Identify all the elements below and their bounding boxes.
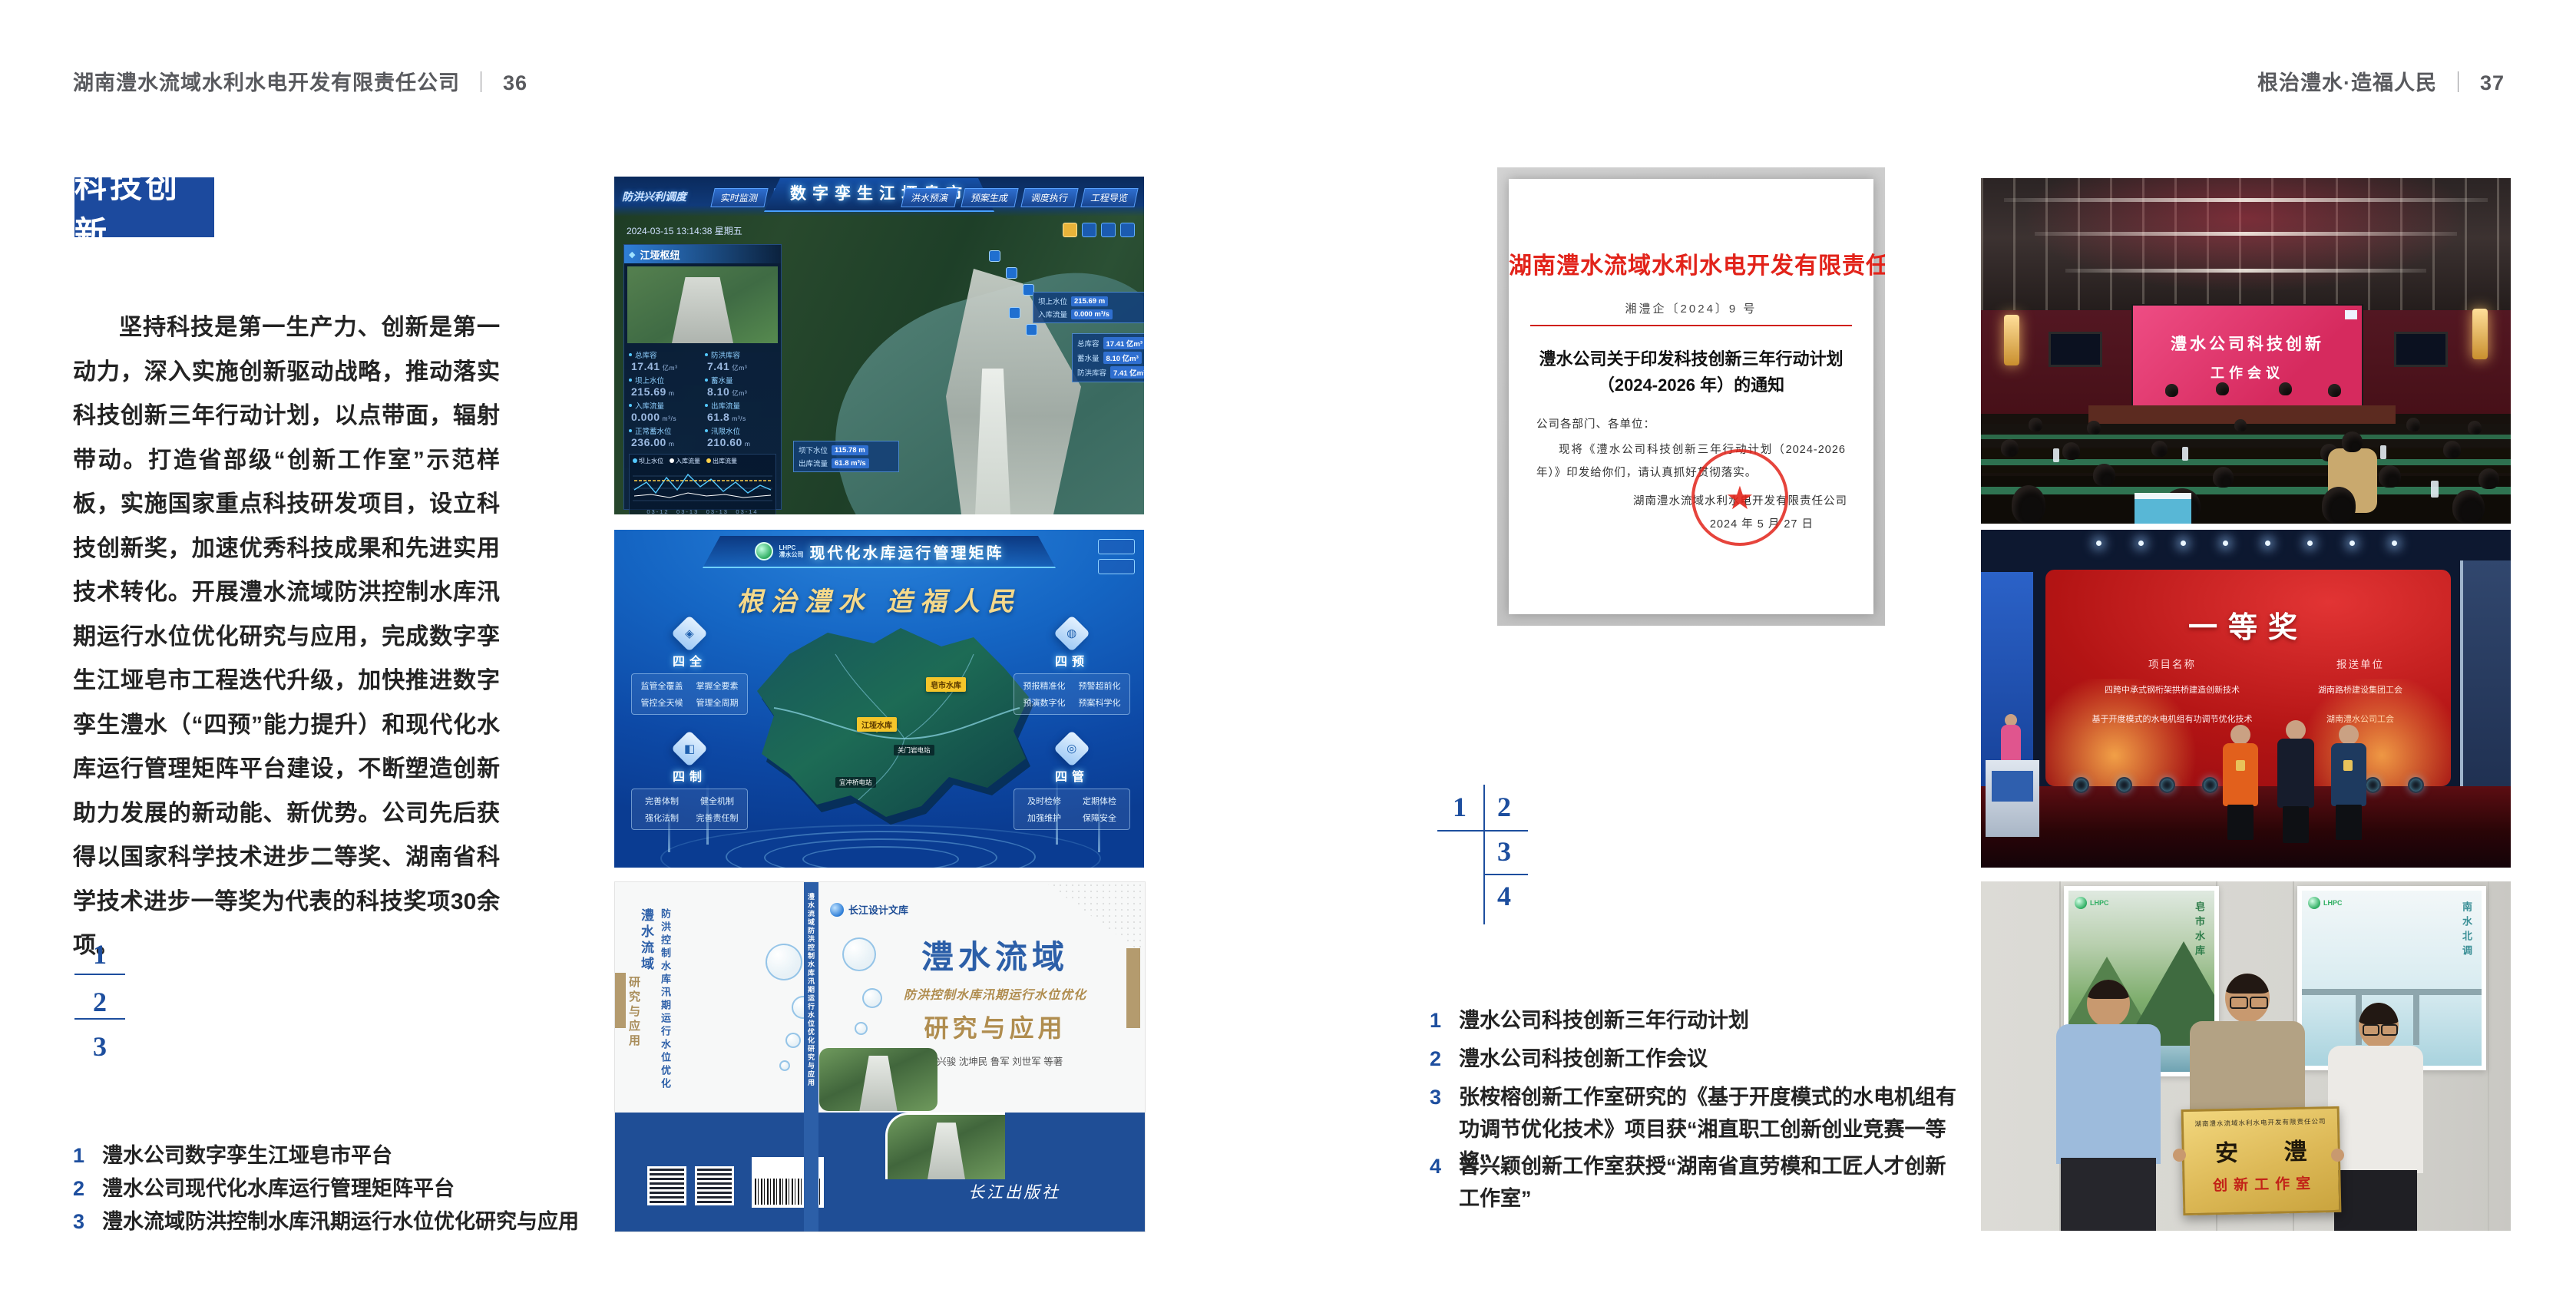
header-divider: ｜ (2448, 71, 2469, 94)
caption-item: 1 澧水公司科技创新三年行动计划 (1430, 1004, 1952, 1037)
qr-code (647, 1166, 686, 1205)
red-rule (1530, 325, 1852, 326)
stamp-star-icon: ★ (1725, 479, 1754, 517)
caption-item: 2 澧水公司现代化水库运行管理矩阵平台 (73, 1172, 455, 1205)
book-title-main: 澧水流域 (868, 931, 1122, 978)
award-row-project: 基于开度模式的水电机组有功调节优化技术 (2076, 713, 2268, 725)
series-name: 长江设计文库 (848, 902, 908, 917)
attendee-silhouette (2452, 490, 2485, 524)
stat-storage: 蓄水量8.10亿m³ (705, 375, 776, 398)
wall-seam (2488, 881, 2489, 1231)
caption-number: 2 (73, 1172, 91, 1205)
wall-sconce-lamp (2004, 315, 2019, 365)
speaker-silhouette (2328, 384, 2341, 397)
wall-tv (2394, 332, 2448, 367)
figure-innovation-meeting-photo: 澧水公司科技创新 工作会议 (1981, 178, 2511, 524)
stage-spotlight (2223, 541, 2228, 546)
reservoir-marker: 江垭水库 (857, 717, 897, 732)
glasses-icon (2250, 997, 2268, 1009)
back-tail-vertical: 研究与应用 (626, 976, 642, 1049)
figure-index-number: 1 (1453, 791, 1467, 823)
matrix-slogan: 根治澧水 造福人民 (614, 580, 1144, 618)
award-row-project: 四跨中承式钢桁架拱桥建造创新技术 (2076, 683, 2268, 696)
back-subtitle-vertical: 防洪控制水库汛期运行水位优化 (658, 908, 673, 1093)
attendee-silhouette (2029, 418, 2042, 431)
front-accent-strip (1126, 948, 1140, 1028)
caption-item: 2 澧水公司科技创新工作会议 (1430, 1043, 1952, 1075)
slide-logo-icon (2345, 310, 2357, 319)
attendee-silhouette (2322, 487, 2356, 524)
poster-logo: LHPC (2075, 897, 2109, 909)
map-pin-icon (1026, 324, 1037, 336)
stat-flood-capacity: 防洪库容7.41亿m³ (705, 349, 776, 372)
panel-siguan: ◎ 四管 及时检修定期体检 加强维护保障安全 (1014, 736, 1130, 830)
caption-text: 澧水公司现代化水库运行管理矩阵平台 (102, 1172, 455, 1205)
stat-limit-level: 汛限水位210.60m (705, 425, 776, 448)
stat-total-capacity: 总库容17.41亿m³ (629, 349, 700, 372)
poster-vertical-title: 南水北调 (2459, 901, 2474, 960)
locate-icon (1101, 223, 1116, 237)
figure-index-line (1483, 874, 1528, 875)
dam-photo (819, 1048, 937, 1111)
station-marker: 关门岩电站 (894, 745, 934, 755)
tissue-box (2135, 493, 2191, 524)
attendee-silhouette (2012, 485, 2045, 524)
tab-project-tour: 工程导览 (1080, 188, 1138, 207)
attendee-silhouette (2151, 441, 2168, 457)
figure-index-number: 4 (1497, 880, 1511, 912)
station-marker: 宜冲桥电站 (835, 777, 876, 788)
caption-text: 曾兴颖创新工作室获授“湖南省直劳模和工匠人才创新工作室” (1459, 1150, 1959, 1215)
figure-digital-twin-platform: 防洪兴利调度 实时监测 洪水预报 防洪预警 数字孪生江垭皂市 洪水预演 预案生成… (614, 177, 1144, 514)
document-salutation: 公司各部门、各单位： (1536, 415, 1655, 431)
tab-flood-rehearsal: 洪水预演 (901, 188, 958, 207)
panel-siquan: ◈ 四全 监管全覆盖掌握全要素 管控全天候管理全周期 (631, 620, 748, 715)
speaker-silhouette (2279, 382, 2292, 395)
plaque-subtitle: 创新工作室 (2184, 1172, 2339, 1195)
speaker-silhouette (2216, 382, 2229, 395)
speaker-silhouette (2165, 384, 2178, 397)
left-page-header: 湖南澧水流域水利水电开发有限责任公司｜36 (73, 66, 527, 96)
stat-outflow: 出库流量61.8m³/s (705, 400, 776, 423)
maintenance-icon: ◎ (1053, 730, 1090, 767)
caption-number: 4 (1430, 1150, 1448, 1215)
attendee-silhouette (2062, 442, 2080, 460)
attendee-silhouette (2443, 441, 2461, 458)
caption-number: 1 (1430, 1004, 1448, 1037)
water-bottle (2431, 481, 2439, 498)
module-label: 防洪兴利调度 (622, 189, 686, 204)
book-title-tail: 研究与应用 (868, 1009, 1122, 1044)
hub-status-panel: ◆江垭枢纽 总库容17.41亿m³ 防洪库容7.41亿m³ 坝上水位215.69… (623, 244, 782, 510)
company-logo-icon (2075, 897, 2087, 909)
ripple-ring (660, 825, 1101, 868)
back-accent-strip (615, 973, 626, 1028)
attendee-silhouette (2001, 439, 2019, 457)
figure-studio-group-photo: LHPC 皂市水库 LHPC 南水北调 (1981, 881, 2511, 1231)
book-spine: 澧水流域防洪控制水库汛期运行水位优化研究与应用 (804, 882, 818, 1232)
page-number-right: 37 (2480, 71, 2505, 94)
stage-spotlight (2265, 541, 2270, 546)
caption-number: 3 (73, 1205, 91, 1238)
glasses-icon (2230, 997, 2248, 1009)
hub-panel-title: 江垭枢纽 (640, 247, 680, 262)
stage-spotlight (2181, 541, 2186, 546)
tab-dispatch-execution: 调度执行 (1020, 188, 1078, 207)
forecast-icon: ◍ (1053, 615, 1090, 652)
chart-x-ticks: 03-12 03-13 03-13 03-14 (633, 508, 772, 514)
ceiling-light (2004, 198, 2488, 202)
company-logo-icon (755, 542, 773, 560)
winner-blue-jacket (2331, 725, 2366, 840)
meeting-screen: 澧水公司科技创新 工作会议 (2131, 304, 2363, 413)
back-title-vertical: 澧水流域 (637, 908, 656, 973)
ceiling-light (2035, 232, 2457, 236)
publisher-name: 长江出版社 (968, 1183, 1060, 1202)
attendee-silhouette (2087, 421, 2101, 435)
figure-management-matrix-platform: LHPC澧水公司 现代化水库运行管理矩阵 根治澧水 造福人民 皂市水库 江垭水库… (614, 530, 1144, 868)
water-bottle (2053, 448, 2059, 462)
press-logo-icon (830, 903, 844, 917)
figure-index-number: 3 (93, 1030, 107, 1063)
reservoir-marker: 皂市水库 (926, 677, 966, 692)
toolbar-icon-group (1063, 223, 1135, 237)
attendee-silhouette (2478, 468, 2499, 489)
company-logo-icon (2308, 897, 2320, 909)
stage-spotlight (2307, 541, 2313, 546)
stat-upstream-level: 坝上水位215.69m (629, 375, 700, 398)
caption-text: 澧水流域防洪控制水库汛期运行水位优化研究与应用 (102, 1205, 579, 1238)
dam-video-thumbnail (627, 266, 778, 343)
tab-plan-generation: 预案生成 (961, 188, 1018, 207)
user-icon (1063, 223, 1077, 237)
poster-vertical-title: 皂市水库 (2192, 901, 2207, 960)
innovation-studio-plaque: 湖南澧水流域水利水电开发有限责任公司 安 澧 创新工作室 (2181, 1106, 2342, 1215)
caption-number: 2 (1430, 1043, 1448, 1075)
brochure-spread: 湖南澧水流域水利水电开发有限责任公司｜36 根治澧水·造福人民｜37 科技创新 … (0, 0, 2576, 1306)
company-name: 湖南澧水流域水利水电开发有限责任公司 (73, 71, 460, 94)
presenter-dark-suit (2277, 720, 2314, 841)
ceiling-light (2065, 269, 2426, 273)
tab-realtime-monitor: 实时监测 (710, 188, 768, 207)
tooltip-upstream: 坝上水位215.69 m 入库流量0.000 m³/s (1033, 292, 1144, 323)
figure-index-line (1483, 785, 1485, 924)
figure-official-document: 湖南澧水流域水利水电开发有限责任公司文件 湘澧企〔2024〕9 号 澧水公司关于… (1497, 167, 1885, 626)
hub-stats-grid: 总库容17.41亿m³ 防洪库容7.41亿m³ 坝上水位215.69m 蓄水量8… (624, 346, 781, 451)
trophy-icon (2343, 760, 2353, 771)
level-flow-mini-chart: 坝上水位 入库流量 出库流量 03-12 03-13 03-13 03-14 (629, 454, 776, 514)
attendee-silhouette (2213, 467, 2234, 488)
host-podium (1986, 760, 2039, 837)
attendee-silhouette (2406, 418, 2420, 431)
desk-mat-strip (1981, 459, 2511, 465)
stage-light-fixture (2408, 777, 2424, 793)
figure-index-number: 2 (1497, 791, 1511, 823)
light-pillar (706, 783, 709, 845)
award-row-unit: 湖南路桥建设集团工会 (2264, 683, 2451, 696)
bubble-graphic (779, 1060, 790, 1071)
plaque-name: 安 澧 (2184, 1132, 2338, 1169)
figure-index-number: 3 (1497, 835, 1511, 868)
attendee-silhouette (2093, 464, 2115, 486)
close-button (1098, 539, 1135, 554)
stage-spotlight (2349, 541, 2355, 546)
attendee-silhouette (2468, 421, 2482, 435)
figure-index-number: 1 (93, 938, 107, 970)
institution-icon: ◧ (671, 730, 708, 767)
attendee-silhouette (2379, 465, 2401, 488)
figure-index-line (1437, 830, 1528, 832)
caption-item: 3 澧水流域防洪控制水库汛期运行水位优化研究与应用 (73, 1205, 579, 1238)
figure-award-ceremony-photo: 一等奖 项目名称 报送单位 四跨中承式钢桁架拱桥建造创新技术 湖南路桥建设集团工… (1981, 530, 2511, 868)
document-title: 澧水公司关于印发科技创新三年行动计划 （2024-2026 年）的通知 (1509, 346, 1873, 398)
wall-sconce-lamp (2472, 309, 2488, 359)
dam-photo (885, 1113, 1005, 1179)
layers-icon (1082, 223, 1096, 237)
map-pin-icon (1009, 307, 1020, 319)
stage-light-fixture (2116, 777, 2132, 793)
spine-title: 澧水流域防洪控制水库汛期运行水位优化研究与应用 (806, 893, 816, 1087)
page-number-left: 36 (503, 71, 527, 94)
caption-text: 澧水公司科技创新工作会议 (1459, 1043, 1708, 1075)
stat-normal-level: 正常蓄水位236.00m (629, 425, 700, 448)
poster-logo: LHPC (2308, 897, 2343, 909)
logo-abbr: LHPC (779, 544, 796, 551)
watershed-3d-map: 皂市水库 江垭水库 关门岩电站 宜冲桥电站 (743, 623, 1044, 829)
caption-item: 4 曾兴颖创新工作室获授“湖南省直劳模和工匠人才创新工作室” (1430, 1150, 1959, 1215)
header-divider: ｜ (471, 71, 492, 94)
qr-code (695, 1166, 734, 1205)
figure-index-line (74, 974, 125, 975)
desk-mat-strip (1981, 435, 2511, 439)
glasses-icon (2363, 1024, 2379, 1036)
right-tab-group: 洪水预演 预案生成 调度执行 工程导览 (903, 188, 1136, 207)
hand (2331, 1149, 2344, 1162)
bubble-graphic (855, 1022, 868, 1035)
winner-orange-jacket (2223, 725, 2258, 840)
caption-item: 1 澧水公司数字孪生江垭皂市平台 (73, 1139, 392, 1172)
stat-inflow: 入库流量0.000m³/s (629, 400, 700, 423)
column-header-unit: 报送单位 (2268, 656, 2451, 671)
book-title-sub: 防洪控制水库汛期运行水位优化 (868, 984, 1122, 1003)
matrix-title: 现代化水库运行管理矩阵 (810, 541, 1004, 563)
right-page-header: 根治澧水·造福人民｜37 (2257, 66, 2505, 96)
light-pillar (668, 806, 670, 852)
caption-text: 澧水公司数字孪生江垭皂市平台 (102, 1139, 392, 1172)
caption-text: 澧水公司科技创新三年行动计划 (1459, 1004, 1749, 1037)
figure-index-line (74, 1018, 125, 1020)
attendee-silhouette (2342, 431, 2363, 452)
figure-book-cover: 澧水流域 防洪控制水库汛期运行水位优化 研究与应用 澧水流域防洪控制水库汛期运行… (614, 881, 1146, 1232)
bridge-graphic (2302, 989, 2482, 995)
screen-title-line2: 工作会议 (2133, 362, 2362, 382)
panel-siyu: ◍ 四预 预报精准化预警超前化 预演数字化预案科学化 (1014, 620, 1130, 715)
mini-chart-svg (633, 467, 772, 504)
bridge-pier (2413, 992, 2419, 1044)
hand (2173, 1149, 2186, 1162)
document-number: 湘澧企〔2024〕9 号 (1509, 300, 1873, 316)
dashboard-datetime: 2024-03-15 13:14:38 星期五 (627, 224, 742, 237)
tooltip-downstream: 坝下水位115.78 m 出库流量61.8 m³/s (793, 441, 899, 472)
page-motto: 根治澧水·造福人民 (2257, 71, 2437, 94)
light-pillar (1056, 775, 1058, 845)
glasses-icon (2381, 1024, 2398, 1036)
column-header-project: 项目名称 (2080, 656, 2264, 671)
stage-light-fixture (2073, 777, 2089, 793)
podium-sign (1992, 771, 2033, 802)
monitor-icon: ◈ (671, 615, 708, 652)
map-pin-icon (989, 250, 1000, 262)
stage-spotlight (2392, 541, 2397, 546)
wall-tv (2049, 332, 2102, 367)
series-badge: 长江设计文库 (830, 902, 908, 917)
logo-name: 澧水公司 (779, 551, 804, 558)
trophy-icon (2236, 760, 2245, 771)
water-bottle (2380, 445, 2386, 459)
water-bottle (2182, 447, 2188, 461)
map-pin-icon (1006, 267, 1017, 279)
bubble-graphic (766, 944, 802, 980)
screen-title-line1: 澧水公司科技创新 (2133, 332, 2362, 355)
matrix-header: LHPC澧水公司 现代化水库运行管理矩阵 (703, 536, 1056, 568)
stage-light-fixture (2202, 777, 2218, 793)
stage-spotlight (2138, 541, 2144, 546)
anchor-icon: ◆ (629, 250, 635, 260)
stage-spotlight (2096, 541, 2101, 546)
section-title-badge: 科技创新 (74, 177, 214, 237)
panel-sizhi: ◧ 四制 完善体制健全机制 强化法制完善责任制 (631, 736, 748, 830)
award-heading: 一等奖 (2045, 603, 2451, 646)
bubble-graphic (785, 1033, 801, 1048)
plaque-org-line: 湖南澧水流域水利水电开发有限责任公司 (2184, 1116, 2337, 1129)
tooltip-storage: 总库容17.41 亿m³ 蓄水量8.10 亿m³ 防洪库容7.41 亿m³ (1072, 333, 1144, 382)
stage-light-fixture (2159, 777, 2175, 793)
light-pillar (1098, 798, 1100, 852)
fullscreen-icon (1120, 223, 1135, 237)
stage-light-fixture (2365, 777, 2381, 793)
publisher-block: 长江出版社 (945, 1180, 1083, 1203)
document-masthead: 湖南澧水流域水利水电开发有限责任公司文件 (1509, 246, 1873, 280)
document-body: 现将《澧水公司科技创新三年行动计划（2024-2026 年）》印发给你们，请认真… (1536, 438, 1846, 484)
attendee-silhouette (2234, 419, 2247, 431)
menu-button (1098, 559, 1135, 574)
document-page: 湖南澧水流域水利水电开发有限责任公司文件 湘澧企〔2024〕9 号 澧水公司关于… (1509, 179, 1873, 614)
figure-index-number: 2 (93, 986, 107, 1018)
section-body-paragraph: 坚持科技是第一生产力、创新是第一动力，深入实施创新驱动战略，推动落实科技创新三年… (73, 306, 500, 968)
caption-number: 1 (73, 1139, 91, 1172)
official-stamp: ★ (1691, 449, 1788, 546)
